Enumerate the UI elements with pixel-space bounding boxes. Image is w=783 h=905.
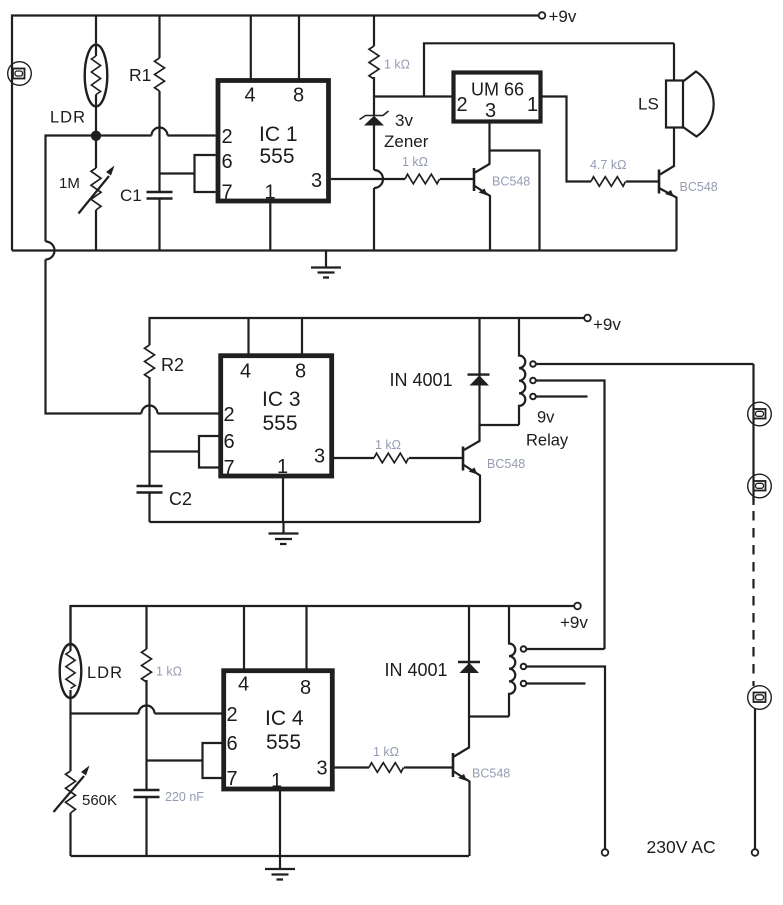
svg-text:2: 2 — [457, 94, 468, 116]
svg-text:C1: C1 — [120, 186, 142, 205]
svg-text:3: 3 — [311, 170, 322, 192]
svg-text:R2: R2 — [161, 355, 184, 375]
svg-text:560K: 560K — [82, 792, 117, 809]
svg-text:BC548: BC548 — [680, 180, 718, 194]
svg-text:1 kΩ: 1 kΩ — [384, 58, 410, 72]
svg-text:220 nF: 220 nF — [165, 790, 204, 804]
svg-text:3: 3 — [317, 758, 328, 780]
svg-text:LDR: LDR — [87, 664, 123, 682]
svg-text:7: 7 — [222, 182, 233, 204]
svg-text:IN 4001: IN 4001 — [390, 370, 453, 390]
svg-text:8: 8 — [300, 677, 311, 699]
svg-text:BC548: BC548 — [492, 175, 530, 189]
svg-text:4: 4 — [245, 85, 256, 107]
svg-text:555: 555 — [266, 731, 301, 754]
svg-text:LS: LS — [638, 95, 659, 114]
svg-text:Relay: Relay — [526, 432, 569, 450]
svg-text:LDR: LDR — [50, 109, 86, 127]
svg-text:BC548: BC548 — [472, 767, 510, 781]
svg-text:2: 2 — [224, 404, 235, 426]
svg-text:IC 3: IC 3 — [262, 388, 301, 411]
svg-text:230V AC: 230V AC — [647, 837, 716, 857]
svg-text:1: 1 — [277, 456, 288, 478]
svg-text:1M: 1M — [59, 175, 80, 192]
svg-text:1 kΩ: 1 kΩ — [402, 155, 428, 169]
svg-text:8: 8 — [293, 85, 304, 107]
svg-text:3v: 3v — [395, 111, 413, 130]
svg-text:Zener: Zener — [384, 132, 429, 151]
svg-text:7: 7 — [224, 457, 235, 479]
svg-text:IC 1: IC 1 — [259, 123, 298, 146]
svg-text:IN 4001: IN 4001 — [385, 660, 448, 680]
svg-text:1: 1 — [265, 182, 276, 204]
svg-text:BC548: BC548 — [487, 457, 525, 471]
svg-text:UM 66: UM 66 — [471, 80, 524, 100]
svg-text:6: 6 — [222, 151, 233, 173]
svg-text:555: 555 — [263, 412, 298, 435]
svg-text:+9v: +9v — [549, 7, 577, 26]
svg-text:+9v: +9v — [593, 315, 621, 334]
svg-text:1 kΩ: 1 kΩ — [375, 438, 401, 452]
svg-text:4: 4 — [238, 674, 249, 696]
svg-text:1: 1 — [271, 770, 282, 792]
svg-text:IC 4: IC 4 — [265, 707, 304, 730]
svg-text:9v: 9v — [537, 409, 555, 427]
svg-text:1: 1 — [527, 94, 538, 116]
svg-text:4: 4 — [240, 361, 251, 383]
svg-text:2: 2 — [227, 704, 238, 726]
svg-text:555: 555 — [260, 145, 295, 168]
svg-text:3: 3 — [485, 100, 496, 122]
svg-text:6: 6 — [224, 431, 235, 453]
svg-text:7: 7 — [227, 768, 238, 790]
svg-text:1 kΩ: 1 kΩ — [373, 745, 399, 759]
svg-text:6: 6 — [227, 733, 238, 755]
svg-text:1 kΩ: 1 kΩ — [156, 665, 182, 679]
svg-text:R1: R1 — [129, 65, 151, 85]
svg-text:8: 8 — [295, 361, 306, 383]
svg-text:C2: C2 — [169, 489, 192, 509]
svg-text:2: 2 — [222, 126, 233, 148]
svg-text:3: 3 — [314, 446, 325, 468]
svg-text:+9v: +9v — [560, 613, 588, 632]
svg-text:4.7 kΩ: 4.7 kΩ — [590, 158, 626, 172]
